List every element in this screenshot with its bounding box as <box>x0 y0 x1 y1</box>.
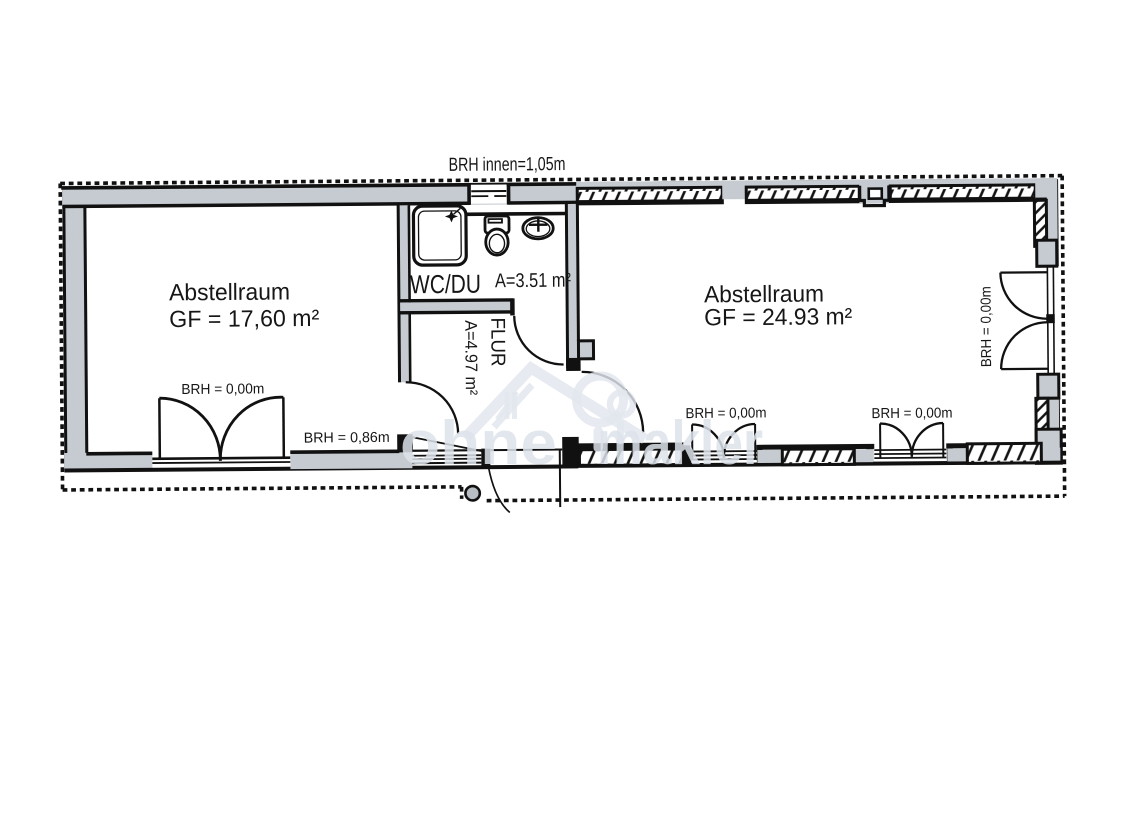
svg-text:BRH = 0,00m: BRH = 0,00m <box>181 381 264 398</box>
svg-text:makler: makler <box>597 409 763 478</box>
svg-text:A=3.51 m²: A=3.51 m² <box>495 270 571 293</box>
svg-text:BRH innen=1,05m: BRH innen=1,05m <box>448 154 565 176</box>
svg-text:GF = 24.93 m²: GF = 24.93 m² <box>704 303 852 330</box>
svg-text:GF = 17,60 m²: GF = 17,60 m² <box>169 305 319 332</box>
svg-text:WC/DU: WC/DU <box>410 269 481 300</box>
svg-text:Abstellraum: Abstellraum <box>169 278 290 305</box>
svg-text:BRH = 0,00m: BRH = 0,00m <box>979 286 996 367</box>
svg-text:A=4.97 m²: A=4.97 m² <box>461 320 481 395</box>
svg-text:FLUR: FLUR <box>486 317 508 366</box>
svg-text:BRH = 0,00m: BRH = 0,00m <box>871 405 952 422</box>
svg-text:BRH = 0,86m: BRH = 0,86m <box>304 430 390 447</box>
svg-text:ohne: ohne <box>400 409 557 478</box>
